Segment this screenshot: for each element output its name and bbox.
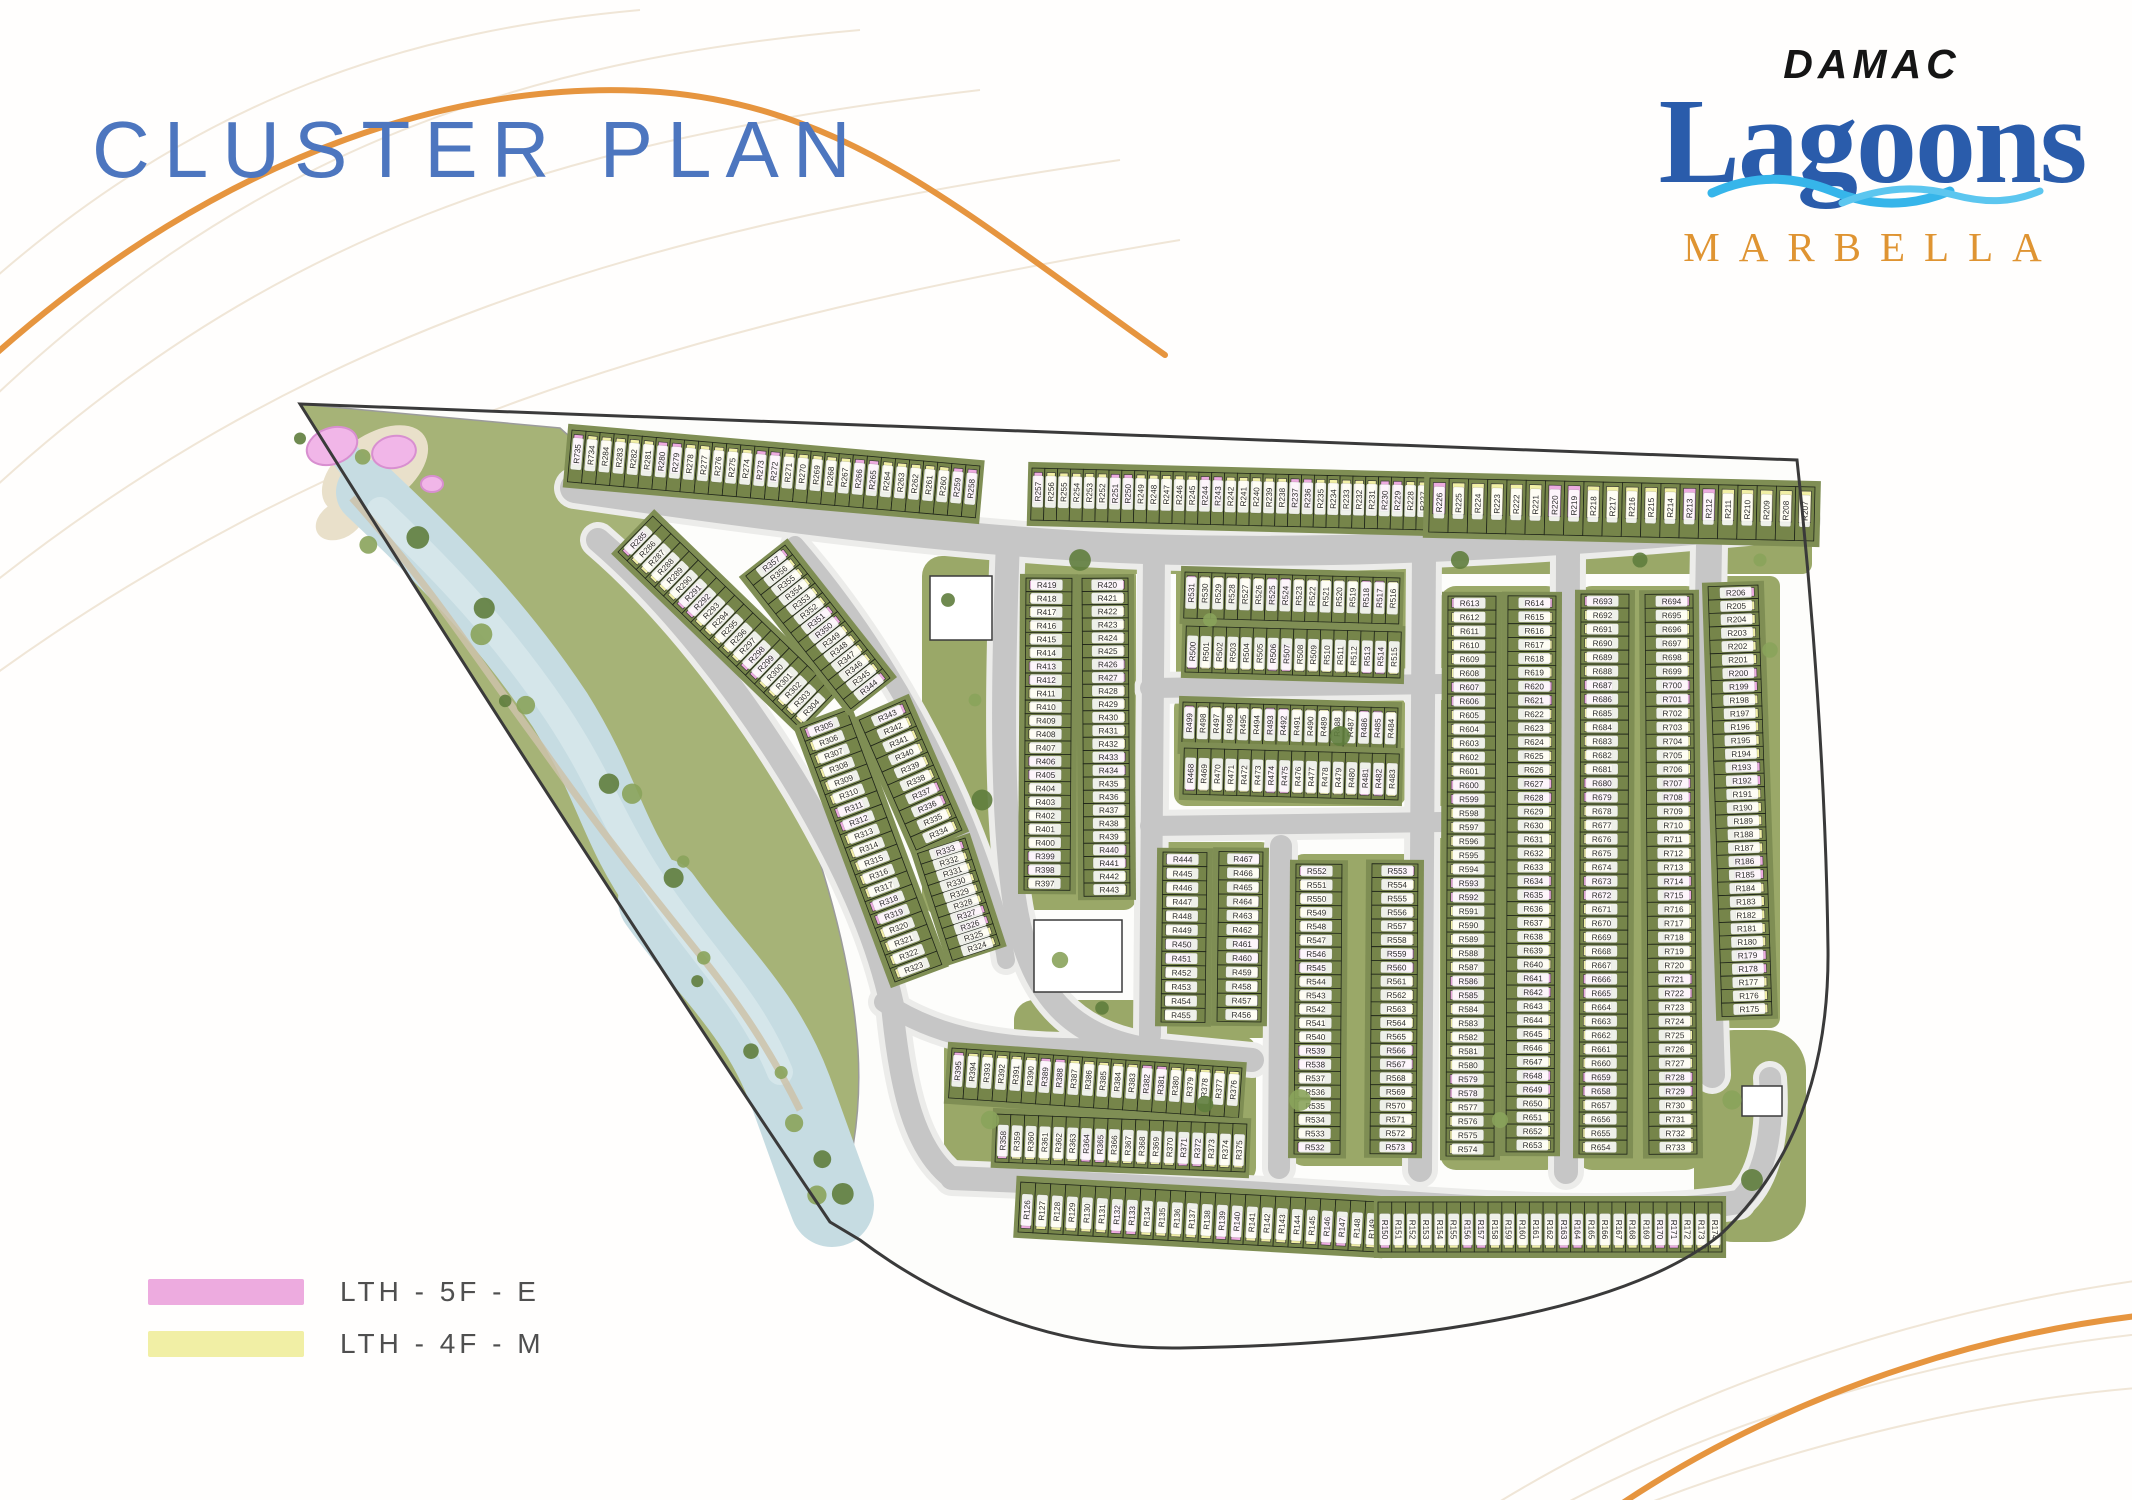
svg-text:R550: R550 <box>1307 895 1327 904</box>
unit-label: R472 <box>1238 759 1250 791</box>
unit: R415 <box>1026 632 1072 646</box>
tree <box>1330 726 1350 746</box>
unit-label: R712 <box>1657 848 1689 859</box>
unit-label: R512 <box>1348 640 1360 672</box>
unit-label: R375 <box>1233 1134 1245 1166</box>
svg-text:R544: R544 <box>1306 977 1326 986</box>
unit-label: R126 <box>1020 1194 1033 1227</box>
unit-label: R468 <box>1184 757 1196 789</box>
unit: R429 <box>1083 697 1129 711</box>
unit: R619 <box>1508 665 1556 679</box>
svg-text:R711: R711 <box>1664 835 1683 844</box>
svg-text:R576: R576 <box>1458 1117 1478 1126</box>
unit: R564 <box>1371 1016 1417 1030</box>
unit-label: R644 <box>1517 1014 1549 1025</box>
unit: R419 <box>1026 578 1072 592</box>
unit-label: R250 <box>1122 478 1134 510</box>
unit-label: R504 <box>1240 637 1252 669</box>
unit: R629 <box>1507 804 1555 818</box>
svg-text:R557: R557 <box>1387 922 1407 931</box>
tree <box>1762 642 1777 657</box>
svg-text:R486: R486 <box>1360 717 1370 737</box>
cluster-col-east-inner: R694R695R696R697R698R699R700R701R702R703… <box>1639 590 1703 1159</box>
unit-label: R495 <box>1237 708 1249 740</box>
unit: R472 <box>1237 750 1252 796</box>
svg-text:R417: R417 <box>1037 608 1057 617</box>
unit: R447 <box>1162 895 1206 910</box>
svg-text:R679: R679 <box>1592 793 1612 802</box>
unit: R573 <box>1370 1140 1416 1154</box>
svg-text:R283: R283 <box>614 447 625 468</box>
unit-label: R725 <box>1659 1030 1691 1041</box>
svg-text:R656: R656 <box>1591 1115 1611 1124</box>
unit-label: R151 <box>1393 1214 1404 1246</box>
svg-text:R159: R159 <box>1504 1220 1513 1240</box>
unit-label: R473 <box>1252 759 1264 791</box>
svg-text:R208: R208 <box>1781 500 1790 520</box>
unit-label: R516 <box>1387 582 1399 614</box>
unit: R500 <box>1185 626 1200 672</box>
unit-label: R615 <box>1518 611 1550 622</box>
svg-text:R595: R595 <box>1459 851 1479 860</box>
unit-label: R240 <box>1250 481 1262 513</box>
unit: R707 <box>1646 776 1694 790</box>
unit-label: R717 <box>1658 918 1690 929</box>
svg-text:R236: R236 <box>1303 488 1312 508</box>
unit-label: R589 <box>1452 934 1484 945</box>
unit: R595 <box>1447 848 1495 862</box>
unit-label: R199 <box>1723 680 1755 692</box>
svg-text:R478: R478 <box>1320 767 1330 787</box>
svg-text:R449: R449 <box>1172 926 1192 935</box>
unit: R659 <box>1579 1070 1627 1084</box>
svg-text:R497: R497 <box>1212 713 1222 733</box>
unit: R613 <box>1448 596 1496 610</box>
unit: R469 <box>1196 748 1211 794</box>
unit-label: R228 <box>1404 485 1416 517</box>
unit: R570 <box>1370 1098 1416 1112</box>
svg-text:R733: R733 <box>1666 1143 1686 1152</box>
unit-label: R484 <box>1385 712 1397 744</box>
svg-text:R206: R206 <box>1726 588 1746 598</box>
unit: R493 <box>1262 704 1277 750</box>
unit: R170 <box>1653 1202 1667 1252</box>
unit: R555 <box>1372 891 1418 905</box>
svg-text:R507: R507 <box>1282 644 1292 664</box>
unit-label: R380 <box>1169 1070 1182 1103</box>
svg-text:R585: R585 <box>1458 991 1478 1000</box>
svg-text:R453: R453 <box>1171 983 1191 992</box>
unit: R601 <box>1447 764 1495 778</box>
svg-text:R579: R579 <box>1458 1075 1478 1084</box>
svg-text:R732: R732 <box>1665 1129 1685 1138</box>
unit-label: R730 <box>1659 1100 1691 1111</box>
svg-text:R696: R696 <box>1662 625 1682 634</box>
unit: R700 <box>1646 678 1694 692</box>
svg-text:R608: R608 <box>1459 669 1479 678</box>
unit-label: R661 <box>1585 1044 1617 1055</box>
tree <box>294 433 306 445</box>
svg-text:R561: R561 <box>1387 977 1407 986</box>
unit: R404 <box>1025 781 1071 795</box>
svg-text:R238: R238 <box>1278 487 1287 507</box>
svg-text:R553: R553 <box>1387 867 1407 876</box>
unit: R398 <box>1024 863 1070 877</box>
svg-text:R217: R217 <box>1608 496 1617 516</box>
unit-label: R247 <box>1160 479 1172 511</box>
unit-label: R392 <box>995 1058 1008 1091</box>
svg-text:R618: R618 <box>1524 654 1544 663</box>
logo-community-text: MARBELLA <box>1632 227 2112 268</box>
legend-label: LTH - 4F - M <box>340 1328 545 1360</box>
svg-text:R250: R250 <box>1123 483 1132 503</box>
unit-label: R133 <box>1125 1200 1138 1233</box>
unit: R468 <box>1183 748 1198 794</box>
svg-text:R473: R473 <box>1253 765 1263 785</box>
unit-label: R443 <box>1093 884 1125 895</box>
unit-label: R430 <box>1092 712 1124 723</box>
cluster-col-centre-inner: R614R615R616R617R618R619R620R621R622R623… <box>1500 592 1562 1157</box>
unit-label: R684 <box>1586 722 1618 733</box>
svg-text:R276: R276 <box>713 456 724 477</box>
unit-label: R437 <box>1093 804 1125 815</box>
unit-label: R693 <box>1587 596 1619 607</box>
unit-label: R618 <box>1518 653 1550 664</box>
unit: R456 <box>1217 1007 1261 1022</box>
unit: R212 <box>1698 484 1719 538</box>
unit-label: R489 <box>1318 710 1330 742</box>
svg-text:R680: R680 <box>1592 779 1612 788</box>
unit-label: R417 <box>1030 606 1062 617</box>
unit: R437 <box>1083 803 1129 817</box>
svg-text:R571: R571 <box>1386 1115 1406 1124</box>
unit-label: R367 <box>1122 1129 1134 1161</box>
svg-text:R484: R484 <box>1386 718 1396 738</box>
unit-label: R690 <box>1586 638 1618 649</box>
svg-text:R280: R280 <box>657 451 668 472</box>
unit: R614 <box>1508 596 1556 610</box>
unit: R466 <box>1219 866 1263 881</box>
unit: R686 <box>1581 692 1629 706</box>
unit: R576 <box>1446 1114 1494 1128</box>
unit: R571 <box>1370 1112 1416 1126</box>
unit: R643 <box>1507 999 1555 1013</box>
unit: R616 <box>1508 624 1556 638</box>
svg-text:R363: R363 <box>1068 1133 1078 1153</box>
unit-label: R728 <box>1659 1072 1691 1083</box>
unit-label: R551 <box>1301 879 1333 890</box>
unit-label: R467 <box>1227 853 1259 864</box>
svg-text:R503: R503 <box>1228 642 1238 662</box>
unit: R544 <box>1295 974 1341 988</box>
svg-text:R672: R672 <box>1592 891 1612 900</box>
unit-label: R215 <box>1645 491 1657 523</box>
unit-label: R145 <box>1305 1210 1318 1243</box>
cluster-strip-s-lower: R468R469R470R471R472R473R474R475R476R477… <box>1179 742 1404 806</box>
unit-label: R575 <box>1452 1130 1484 1141</box>
unit: R226 <box>1429 478 1450 532</box>
svg-text:R530: R530 <box>1200 583 1210 603</box>
unit-label: R373 <box>1205 1133 1217 1165</box>
unit: R159 <box>1502 1202 1516 1252</box>
svg-text:R394: R394 <box>968 1061 978 1082</box>
svg-text:R626: R626 <box>1524 766 1544 775</box>
unit: R459 <box>1218 965 1262 980</box>
unit-label: R168 <box>1627 1214 1638 1246</box>
svg-text:R401: R401 <box>1035 825 1055 834</box>
unit-label: R173 <box>1696 1214 1707 1246</box>
road <box>1150 556 1154 1035</box>
svg-text:R589: R589 <box>1459 935 1479 944</box>
unit: R181 <box>1719 921 1769 936</box>
unit: R702 <box>1646 706 1694 720</box>
svg-text:R446: R446 <box>1173 883 1193 892</box>
unit-label: R238 <box>1276 482 1288 514</box>
unit-label: R562 <box>1380 989 1412 1000</box>
svg-text:R248: R248 <box>1149 484 1158 504</box>
tree <box>972 790 993 811</box>
unit: R423 <box>1082 618 1128 632</box>
svg-text:R128: R128 <box>1052 1201 1062 1221</box>
unit-label: R398 <box>1029 864 1061 875</box>
svg-text:R598: R598 <box>1459 809 1479 818</box>
unit: R162 <box>1543 1202 1557 1252</box>
unit: R463 <box>1218 908 1262 923</box>
svg-text:R194: R194 <box>1731 749 1751 759</box>
unit-label: R410 <box>1030 701 1062 712</box>
svg-text:R510: R510 <box>1322 645 1332 665</box>
amenity-pool <box>421 476 443 492</box>
unit: R510 <box>1319 630 1334 676</box>
unit: R639 <box>1507 943 1555 957</box>
unit-label: R230 <box>1379 484 1391 516</box>
unit-label: R561 <box>1380 976 1412 987</box>
unit: R587 <box>1447 960 1495 974</box>
svg-text:R220: R220 <box>1550 495 1559 515</box>
unit-label: R584 <box>1452 1004 1484 1015</box>
svg-text:R138: R138 <box>1202 1210 1212 1230</box>
unit-label: R670 <box>1585 918 1617 929</box>
unit-label: R522 <box>1306 580 1318 612</box>
svg-text:R645: R645 <box>1523 1030 1543 1039</box>
svg-text:R455: R455 <box>1171 1011 1191 1020</box>
svg-text:R686: R686 <box>1592 695 1612 704</box>
unit: R403 <box>1025 795 1071 809</box>
unit-label: R184 <box>1729 882 1761 894</box>
unit: R667 <box>1580 958 1628 972</box>
unit-label: R515 <box>1388 641 1400 673</box>
svg-text:R541: R541 <box>1306 1019 1326 1028</box>
svg-text:R602: R602 <box>1459 753 1479 762</box>
svg-text:R150: R150 <box>1380 1220 1389 1240</box>
unit: R584 <box>1447 1002 1495 1016</box>
unit-label: R624 <box>1518 736 1550 747</box>
road <box>1566 552 1568 1172</box>
unit: R376 <box>1224 1067 1242 1118</box>
unit-label: R153 <box>1421 1214 1432 1246</box>
unit: R219 <box>1563 481 1584 535</box>
unit: R523 <box>1291 575 1306 621</box>
unit-label: R200 <box>1722 667 1754 679</box>
unit-label: R210 <box>1741 494 1753 526</box>
unit-label: R623 <box>1518 722 1550 733</box>
unit-label: R204 <box>1720 613 1752 625</box>
unit: R732 <box>1649 1126 1697 1140</box>
svg-text:R644: R644 <box>1523 1016 1543 1025</box>
unit-label: R244 <box>1199 480 1211 512</box>
unit: R668 <box>1580 944 1628 958</box>
unit: R507 <box>1279 629 1294 675</box>
svg-text:R202: R202 <box>1728 642 1748 652</box>
unit: R515 <box>1387 632 1402 678</box>
unit-label: R407 <box>1030 742 1062 753</box>
svg-text:R177: R177 <box>1738 978 1758 988</box>
unit: R171 <box>1667 1202 1681 1252</box>
unit-label: R497 <box>1210 707 1222 739</box>
svg-text:R167: R167 <box>1614 1220 1623 1240</box>
svg-text:R253: R253 <box>1085 482 1094 502</box>
tree <box>785 1114 803 1132</box>
unit-label: R582 <box>1452 1032 1484 1043</box>
unit: R418 <box>1026 592 1072 606</box>
svg-text:R612: R612 <box>1460 613 1480 622</box>
svg-text:R256: R256 <box>1046 482 1055 502</box>
unit: R199 <box>1711 679 1761 694</box>
unit-label: R596 <box>1453 836 1485 847</box>
unit: R230 <box>1377 477 1391 529</box>
unit: R412 <box>1025 673 1071 687</box>
svg-text:R729: R729 <box>1665 1087 1685 1096</box>
svg-text:R591: R591 <box>1459 907 1479 916</box>
svg-text:R389: R389 <box>1040 1066 1050 1087</box>
unit: R666 <box>1580 972 1628 986</box>
svg-text:R632: R632 <box>1524 849 1544 858</box>
tree <box>1095 1001 1109 1015</box>
cluster-top-row-mid: R257R256R255R254R253R252R251R250R249R248… <box>1027 462 1434 536</box>
svg-text:R273: R273 <box>755 460 766 481</box>
unit: R684 <box>1581 720 1629 734</box>
unit-label: R539 <box>1299 1045 1331 1056</box>
svg-text:R388: R388 <box>1055 1067 1065 1088</box>
unit: R439 <box>1084 830 1130 844</box>
svg-text:R362: R362 <box>1054 1133 1064 1153</box>
unit-label: R402 <box>1029 810 1061 821</box>
unit-label: R209 <box>1760 494 1772 526</box>
svg-text:R466: R466 <box>1233 869 1253 878</box>
cluster-col-b-inner: R420R421R422R423R424R425R426R427R428R429… <box>1076 574 1136 900</box>
unit-label: R707 <box>1657 778 1689 789</box>
unit: R209 <box>1756 486 1777 540</box>
svg-text:R282: R282 <box>628 448 639 469</box>
svg-text:R188: R188 <box>1734 830 1754 840</box>
svg-text:R463: R463 <box>1233 911 1253 920</box>
unit-label: R720 <box>1658 960 1690 971</box>
svg-text:R386: R386 <box>1084 1069 1094 1090</box>
unit: R178 <box>1720 961 1770 976</box>
svg-text:R489: R489 <box>1319 716 1329 736</box>
unit: R363 <box>1064 1117 1080 1166</box>
svg-text:R436: R436 <box>1099 793 1119 802</box>
unit: R674 <box>1580 860 1628 874</box>
unit: R430 <box>1083 711 1129 725</box>
unit: R567 <box>1371 1057 1417 1071</box>
unit-label: R572 <box>1379 1127 1411 1138</box>
unit-label: R235 <box>1314 483 1326 515</box>
unit-label: R185 <box>1729 869 1761 881</box>
svg-text:R399: R399 <box>1035 852 1055 861</box>
unit-label: R591 <box>1452 906 1484 917</box>
damac-lagoons-logo: DAMAC Lagoons MARBELLA <box>1632 44 2112 268</box>
unit-label: R421 <box>1091 592 1123 603</box>
unit: R699 <box>1646 664 1694 678</box>
unit-label: R229 <box>1391 484 1403 516</box>
svg-text:R441: R441 <box>1099 859 1119 868</box>
cluster-top-row-east: R226R225R224R223R222R221R220R219R218R217… <box>1423 472 1821 547</box>
unit-label: R441 <box>1093 857 1125 868</box>
unit-label: R510 <box>1321 639 1333 671</box>
unit-label: R704 <box>1656 736 1688 747</box>
unit-label: R629 <box>1518 806 1550 817</box>
tree <box>599 773 619 793</box>
svg-text:R600: R600 <box>1459 781 1479 790</box>
tree <box>406 526 429 549</box>
unit-label: R689 <box>1586 652 1618 663</box>
svg-text:R263: R263 <box>896 472 907 493</box>
tree <box>622 784 642 804</box>
unit: R455 <box>1161 1008 1205 1023</box>
svg-text:R705: R705 <box>1663 751 1683 760</box>
svg-text:R247: R247 <box>1162 484 1171 504</box>
unit: R508 <box>1293 629 1308 675</box>
unit-label: R485 <box>1371 712 1383 744</box>
unit-label: R427 <box>1092 672 1124 683</box>
unit-label: R453 <box>1165 981 1197 992</box>
svg-text:R240: R240 <box>1252 487 1261 507</box>
svg-text:R659: R659 <box>1591 1073 1611 1082</box>
svg-text:R528: R528 <box>1227 584 1237 604</box>
unit: R627 <box>1507 777 1555 791</box>
unit-label: R544 <box>1300 976 1332 987</box>
unit-label: R563 <box>1380 1003 1412 1014</box>
svg-text:R604: R604 <box>1459 725 1479 734</box>
unit: R581 <box>1446 1044 1494 1058</box>
svg-text:R715: R715 <box>1664 891 1684 900</box>
unit-label: R423 <box>1092 619 1124 630</box>
unit-label: R171 <box>1668 1214 1679 1246</box>
unit: R486 <box>1356 707 1371 753</box>
unit-label: R132 <box>1110 1199 1123 1232</box>
svg-text:R393: R393 <box>982 1062 992 1083</box>
unit: R593 <box>1447 876 1495 890</box>
tree <box>981 1111 999 1129</box>
unit-label: R456 <box>1225 1009 1257 1020</box>
unit-label: R376 <box>1227 1074 1240 1107</box>
svg-text:R411: R411 <box>1036 689 1055 698</box>
unit: R675 <box>1580 846 1628 860</box>
svg-text:R513: R513 <box>1363 646 1373 666</box>
unit: R241 <box>1236 473 1250 525</box>
unit-label: R633 <box>1517 861 1549 872</box>
unit: R480 <box>1344 753 1359 799</box>
unit: R654 <box>1579 1140 1627 1154</box>
svg-text:R168: R168 <box>1628 1220 1637 1240</box>
unit: R540 <box>1295 1030 1341 1044</box>
cluster-southwest-lower: R358R359R360R361R362R363R364R365R366R367… <box>991 1108 1252 1178</box>
svg-text:R264: R264 <box>882 471 893 492</box>
unit: R710 <box>1647 818 1695 832</box>
svg-text:R170: R170 <box>1655 1220 1664 1240</box>
unit-label: R671 <box>1585 904 1617 915</box>
